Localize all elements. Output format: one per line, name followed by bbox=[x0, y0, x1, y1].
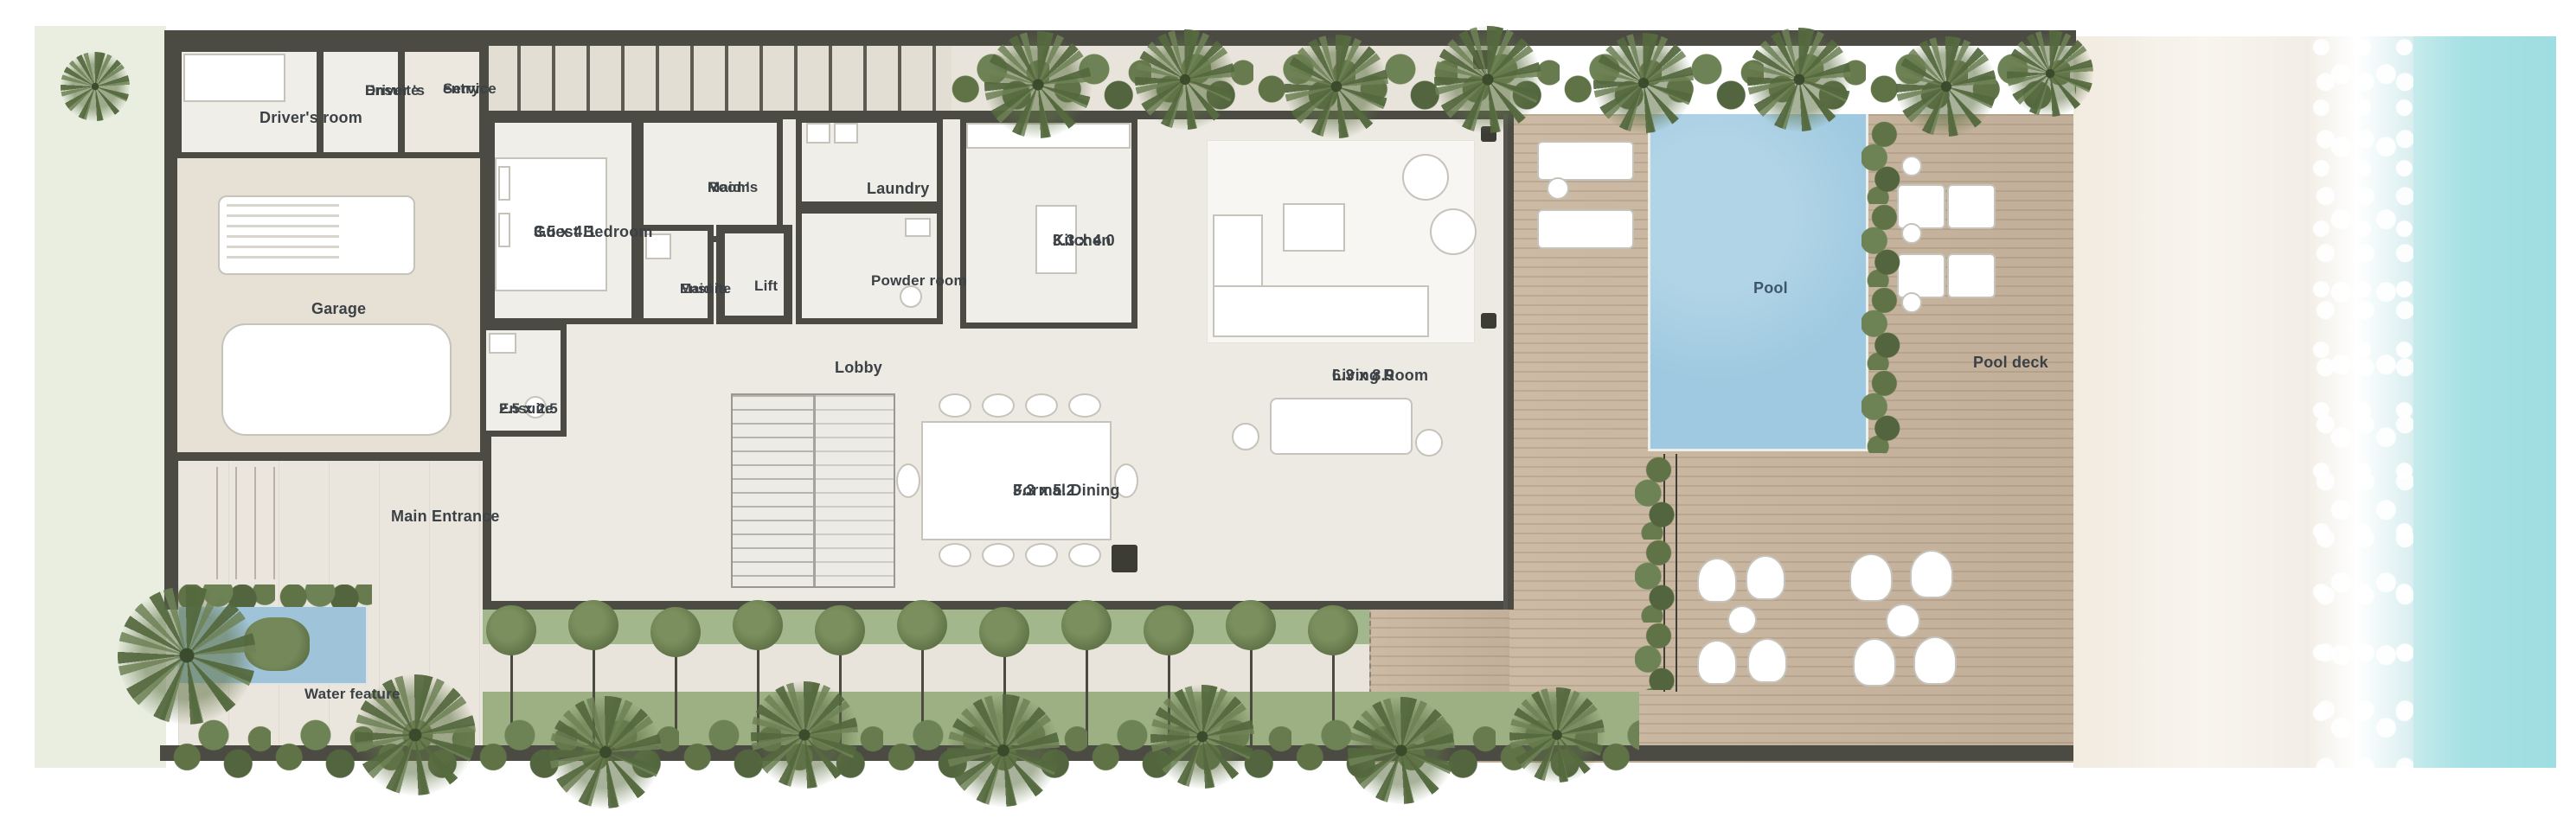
palm-tree bbox=[1348, 697, 1455, 804]
palm-tree bbox=[1434, 26, 1541, 133]
deck-chair bbox=[1849, 553, 1893, 602]
pergola-slats bbox=[483, 46, 952, 114]
deck-chair bbox=[1697, 640, 1737, 685]
staircase bbox=[731, 393, 895, 588]
sun-lounger bbox=[1897, 184, 1945, 229]
sun-lounger bbox=[1947, 184, 1996, 229]
deck-chair bbox=[1910, 550, 1953, 598]
dining-chair bbox=[896, 463, 920, 498]
palm-tree bbox=[1509, 687, 1605, 782]
palm-tree bbox=[1747, 28, 1851, 131]
room-lift bbox=[716, 225, 792, 324]
dryer bbox=[834, 123, 858, 144]
palm-tree bbox=[947, 694, 1060, 807]
small-tree bbox=[486, 605, 536, 655]
small-tree bbox=[1308, 605, 1358, 655]
palm-tree bbox=[1285, 35, 1388, 138]
palm-tree bbox=[61, 52, 130, 121]
car-suv bbox=[221, 323, 452, 436]
side-table bbox=[1415, 429, 1443, 457]
entrance-steps bbox=[216, 467, 275, 579]
lounger-side-table bbox=[1901, 292, 1922, 313]
small-tree bbox=[1226, 600, 1276, 650]
deck-table bbox=[1727, 605, 1757, 635]
room-service-entry bbox=[399, 46, 485, 158]
small-tree bbox=[733, 600, 783, 650]
room-drivers-ensuite bbox=[317, 46, 404, 158]
washing-machine bbox=[806, 123, 830, 144]
deck-chair bbox=[1853, 638, 1896, 687]
column-post bbox=[1481, 313, 1496, 329]
dining-chair bbox=[1025, 393, 1058, 418]
stair-flight-up bbox=[733, 395, 813, 586]
dining-chair bbox=[1068, 543, 1101, 567]
deck-chair bbox=[1697, 558, 1737, 603]
palm-tree bbox=[1150, 685, 1254, 789]
sun-lounger bbox=[1897, 253, 1945, 298]
floor-plan-canvas: Driver's room Driver 'sEnsuite Serviceen… bbox=[0, 0, 2576, 824]
dining-table bbox=[921, 421, 1112, 540]
sun-lounger bbox=[1537, 209, 1634, 249]
small-tree bbox=[650, 607, 701, 657]
palm-tree bbox=[1593, 33, 1694, 133]
small-tree bbox=[979, 607, 1029, 657]
guest-bed-pillow bbox=[498, 213, 510, 247]
lounger-side-table bbox=[1901, 156, 1922, 176]
drivers-bed bbox=[183, 54, 285, 102]
powder-basin bbox=[905, 218, 931, 237]
dining-chair bbox=[939, 393, 971, 418]
armchair bbox=[1402, 154, 1449, 201]
sectional-sofa bbox=[1213, 285, 1429, 337]
pool-side-hedge bbox=[1862, 121, 1903, 454]
guest-bed-pillow bbox=[498, 166, 510, 201]
deck-hedge-column bbox=[1635, 457, 1678, 690]
small-tree bbox=[1061, 600, 1112, 650]
deck-chair bbox=[1913, 636, 1957, 685]
dining-chair bbox=[982, 543, 1015, 567]
palm-tree bbox=[2007, 30, 2093, 117]
small-tree bbox=[1144, 605, 1194, 655]
armchair bbox=[1430, 208, 1477, 255]
small-tree bbox=[568, 600, 618, 650]
palm-tree bbox=[1896, 36, 1996, 137]
sun-lounger bbox=[1537, 141, 1634, 181]
sun-lounger bbox=[1947, 253, 1996, 298]
deck-table bbox=[1886, 604, 1920, 638]
palm-tree bbox=[751, 681, 858, 789]
palm-tree bbox=[118, 586, 256, 725]
lounge-sofa bbox=[1270, 398, 1413, 455]
beach-sand bbox=[2073, 36, 2310, 768]
deck-chair bbox=[1747, 638, 1787, 683]
garden-light-post bbox=[1112, 545, 1137, 572]
lounger-side-table bbox=[1547, 177, 1569, 200]
pickup-truck-bed bbox=[227, 204, 339, 266]
coffee-table bbox=[1283, 203, 1345, 252]
dining-chair bbox=[1025, 543, 1058, 567]
living-room-glass-wall bbox=[1503, 114, 1508, 610]
stair-flight-down bbox=[813, 395, 894, 586]
dining-chair bbox=[939, 543, 971, 567]
palm-tree bbox=[984, 31, 1092, 138]
dining-chair bbox=[982, 393, 1015, 418]
side-table bbox=[1232, 423, 1259, 450]
palm-tree bbox=[1135, 29, 1235, 130]
palm-tree bbox=[549, 696, 662, 808]
deck-chair bbox=[1746, 555, 1785, 600]
small-tree bbox=[815, 605, 865, 655]
sea-water bbox=[2413, 36, 2556, 768]
small-tree bbox=[897, 600, 947, 650]
dining-chair bbox=[1068, 393, 1101, 418]
ensuite-basin bbox=[489, 333, 516, 354]
lounger-side-table bbox=[1901, 223, 1922, 244]
beach-surf-foam bbox=[2310, 36, 2413, 768]
